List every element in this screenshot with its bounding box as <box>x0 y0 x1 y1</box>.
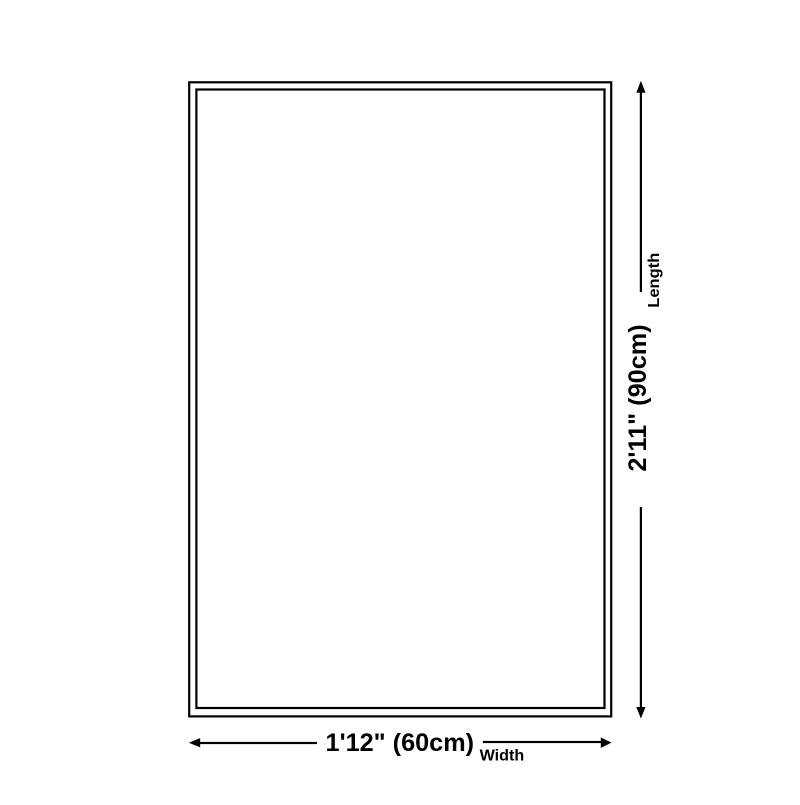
svg-text:1'12" (60cm): 1'12" (60cm) <box>326 729 475 757</box>
svg-text:Width: Width <box>480 747 525 764</box>
svg-text:Length: Length <box>646 253 663 308</box>
svg-text:2'11" (90cm): 2'11" (90cm) <box>624 324 652 471</box>
